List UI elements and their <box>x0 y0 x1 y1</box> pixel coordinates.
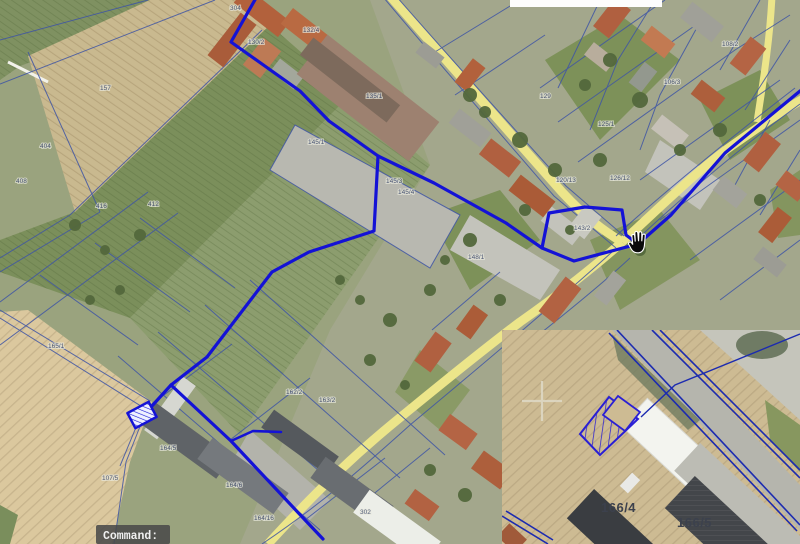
parcel-label: 163/2 <box>319 397 336 404</box>
parcel-label: 143/2 <box>574 225 591 232</box>
parcel-label: 125/1 <box>598 121 615 128</box>
parcel-label: 157 <box>100 85 111 92</box>
aerial-map-canvas[interactable]: 157404408416412304130/2132/4135/1145/114… <box>0 0 800 544</box>
parcel-label: 304 <box>230 5 241 12</box>
parcel-label: 416 <box>96 203 107 210</box>
command-prompt-text[interactable]: Command: <box>103 530 158 543</box>
parcel-label: 408 <box>16 178 27 185</box>
gis-map-viewport[interactable]: 157404408416412304130/2132/4135/1145/114… <box>0 0 800 544</box>
parcel-label: 132/4 <box>303 27 320 34</box>
parcel-label: 145/1 <box>308 139 325 146</box>
parcel-label: 166/5 <box>677 515 712 530</box>
overlapping-window-edge <box>510 0 662 7</box>
parcel-label: 145/3 <box>386 178 403 185</box>
parcel-label: 130/2 <box>248 39 265 46</box>
parcel-label: 164/16 <box>254 515 274 522</box>
parcel-label: 404 <box>40 143 51 150</box>
parcel-label: 145/4 <box>398 189 415 196</box>
command-bar[interactable]: Command: <box>96 525 170 544</box>
parcel-label: 120/13 <box>556 177 576 184</box>
parcel-label: 148/1 <box>468 254 485 261</box>
parcel-label: 108/2 <box>722 41 739 48</box>
magnifier-inset-panel: 166/4166/5 <box>497 330 800 544</box>
parcel-label: 164/6 <box>226 482 243 489</box>
parcel-label: 302 <box>360 509 371 516</box>
parcel-label: 107/5 <box>102 475 119 482</box>
parcel-label: 165/1 <box>48 343 65 350</box>
parcel-label: 162/2 <box>286 389 303 396</box>
parcel-label: 166/4 <box>601 500 636 515</box>
parcel-label: 164/5 <box>160 445 177 452</box>
parcel-label: 412 <box>148 201 159 208</box>
parcel-label: 135/1 <box>366 93 383 100</box>
parcel-label: 129 <box>540 93 551 100</box>
parcel-label: 126/12 <box>610 175 630 182</box>
parcel-label: 106/3 <box>664 79 681 86</box>
